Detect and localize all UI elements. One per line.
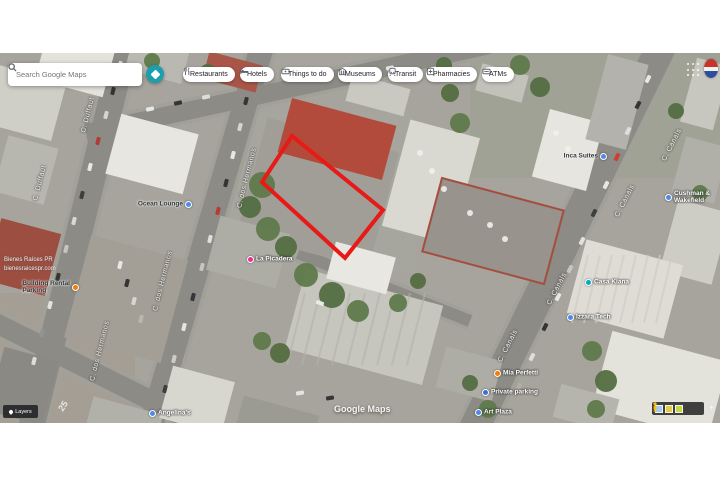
directions-button[interactable] bbox=[146, 65, 164, 83]
chip-things-to-do[interactable]: Things to do bbox=[281, 67, 334, 82]
pin-icon bbox=[8, 409, 14, 415]
poi-label[interactable]: Building RentalParking bbox=[22, 280, 70, 294]
layers-button[interactable]: Layers bbox=[3, 405, 38, 418]
striped-logo bbox=[704, 59, 718, 78]
layers-label: Layers bbox=[15, 409, 32, 415]
poi-dot-icon[interactable] bbox=[185, 201, 192, 208]
poi-dot-icon[interactable] bbox=[149, 410, 156, 417]
poi-dot-icon[interactable] bbox=[72, 284, 79, 291]
poi-dot-icon[interactable] bbox=[475, 409, 482, 416]
chip-label: Restaurants bbox=[190, 71, 228, 78]
satellite-imagery bbox=[0, 53, 720, 423]
mini-plus-icon[interactable]: + bbox=[709, 403, 714, 412]
poi-label[interactable]: Izzara Tech bbox=[576, 314, 611, 321]
poi-label[interactable]: La Picadera bbox=[256, 256, 293, 263]
chip-label: Transit bbox=[395, 71, 416, 78]
directions-icon bbox=[150, 69, 160, 79]
screenshot-root: C. DuffautC. DuffautC. dos HermanosC. do… bbox=[0, 0, 720, 480]
hotel-icon bbox=[240, 67, 249, 76]
map-type-thumbnail-2[interactable] bbox=[665, 405, 673, 413]
google-maps-watermark: Google Maps bbox=[334, 404, 391, 414]
search-input[interactable] bbox=[14, 69, 136, 80]
poi-dot-icon[interactable] bbox=[585, 279, 592, 286]
chip-label: Things to do bbox=[288, 71, 327, 78]
poi-label[interactable]: Private parking bbox=[491, 389, 538, 396]
pharmacy-icon bbox=[426, 67, 435, 76]
poi-label[interactable]: Angelina's bbox=[158, 410, 191, 417]
chip-label: Pharmacies bbox=[433, 71, 470, 78]
atm-icon bbox=[482, 67, 491, 76]
poi-dot-icon[interactable] bbox=[567, 314, 574, 321]
pegman-icon[interactable] bbox=[652, 402, 658, 412]
map-type-thumbnail-3[interactable] bbox=[675, 405, 683, 413]
rooftop-vents-grid bbox=[687, 63, 701, 79]
search-icon[interactable] bbox=[8, 63, 17, 72]
chip-hotels[interactable]: Hotels bbox=[240, 67, 274, 82]
ticket-icon bbox=[281, 67, 290, 76]
poi-dot-icon[interactable] bbox=[665, 194, 672, 201]
poi-dot-icon[interactable] bbox=[494, 370, 501, 377]
museum-icon bbox=[338, 67, 347, 76]
poi-label[interactable]: Casa Kiana bbox=[594, 279, 629, 286]
restaurant-icon bbox=[183, 67, 192, 76]
poi-dot-icon[interactable] bbox=[600, 153, 607, 160]
chip-restaurants[interactable]: Restaurants bbox=[183, 67, 235, 82]
search-box[interactable] bbox=[8, 63, 142, 86]
chip-transit[interactable]: Transit bbox=[388, 67, 423, 82]
photo-watermark-line1: Bienes Raíces PR bbox=[4, 257, 53, 263]
poi-label[interactable]: Inca Suites bbox=[564, 153, 598, 160]
chip-label: ATMs bbox=[489, 71, 507, 78]
chip-atms[interactable]: ATMs bbox=[482, 67, 514, 82]
transit-icon bbox=[388, 67, 397, 76]
chip-museums[interactable]: Museums bbox=[338, 67, 382, 82]
satellite-map[interactable]: C. DuffautC. DuffautC. dos HermanosC. do… bbox=[0, 53, 720, 423]
chip-pharmacies[interactable]: Pharmacies bbox=[426, 67, 477, 82]
chip-label: Museums bbox=[345, 71, 375, 78]
streetview-toolbar[interactable] bbox=[652, 402, 704, 415]
chip-label: Hotels bbox=[247, 71, 267, 78]
poi-label[interactable]: Ocean Lounge bbox=[138, 201, 183, 208]
photo-watermark-line2: bienesraicespr.com bbox=[4, 266, 56, 272]
poi-label[interactable]: Art Plaza bbox=[484, 409, 512, 416]
poi-label[interactable]: Mia Perfetti bbox=[503, 370, 538, 377]
poi-dot-icon[interactable] bbox=[482, 389, 489, 396]
poi-dot-icon[interactable] bbox=[247, 256, 254, 263]
poi-label[interactable]: Cushman &Wakefield bbox=[674, 190, 710, 204]
